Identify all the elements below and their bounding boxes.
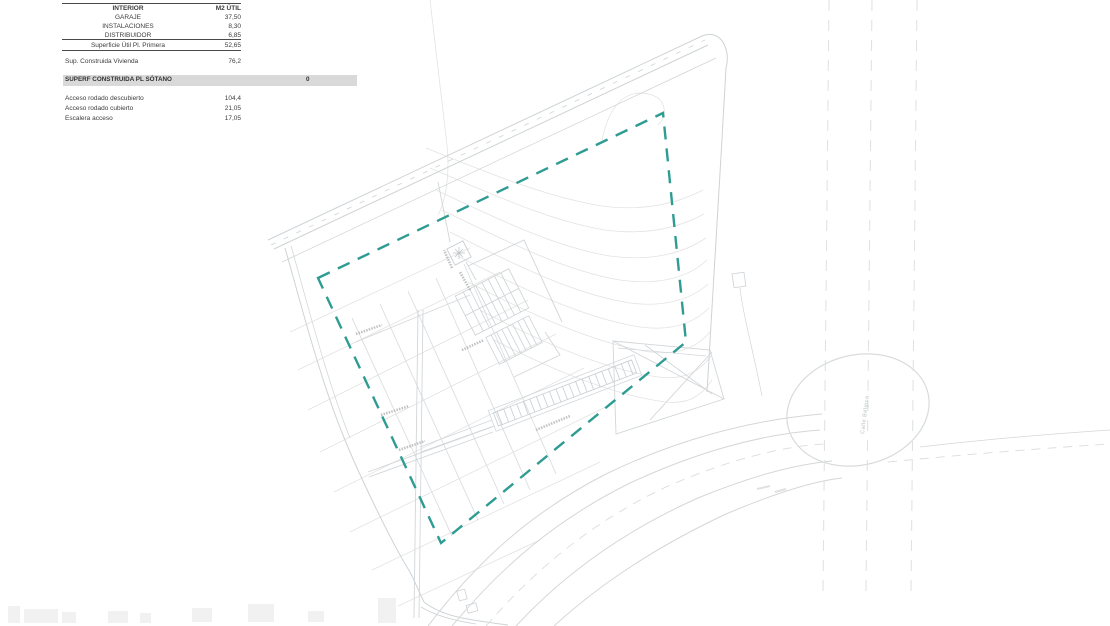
row-value: 37,50 xyxy=(194,13,241,22)
watermark-marks xyxy=(8,598,396,623)
row-value: 8,30 xyxy=(194,22,241,31)
entrance-square xyxy=(447,241,471,265)
row-value: 52,65 xyxy=(194,41,241,50)
street-name-label: Calle Bélgica xyxy=(860,395,871,434)
row-value: 76,2 xyxy=(194,57,241,66)
surface-table: INTERIOR M2 ÚTIL GARAJE 37,50 INSTALACIO… xyxy=(0,0,380,140)
table-bottom-rule xyxy=(62,50,241,51)
building-linework xyxy=(352,182,786,618)
access-ramp xyxy=(488,355,642,431)
row-label: Superficie Útil Pl. Primera xyxy=(62,41,194,50)
sotano-banner: SUPERF CONSTRUIDA PL SÓTANO 0 xyxy=(63,75,357,86)
roundabout-oval xyxy=(775,339,941,481)
banner-value: 0 xyxy=(306,75,310,86)
row-label: INSTALACIONES xyxy=(62,22,194,31)
banner-label: SUPERF CONSTRUIDA PL SÓTANO xyxy=(65,75,172,86)
compass-star-icon xyxy=(453,247,465,259)
site-plan-sheet: Calle Bélgica INTE xyxy=(0,0,1110,626)
row-label: GARAJE xyxy=(62,13,194,22)
micro-annotation-marks xyxy=(356,250,570,450)
row-value: 104,4 xyxy=(194,94,241,103)
row-value: 21,05 xyxy=(194,104,241,113)
street-lane-dashes xyxy=(823,0,917,592)
road-curves xyxy=(428,414,1110,626)
row-value: 17,05 xyxy=(194,114,241,123)
stair-block-upper xyxy=(455,269,528,335)
